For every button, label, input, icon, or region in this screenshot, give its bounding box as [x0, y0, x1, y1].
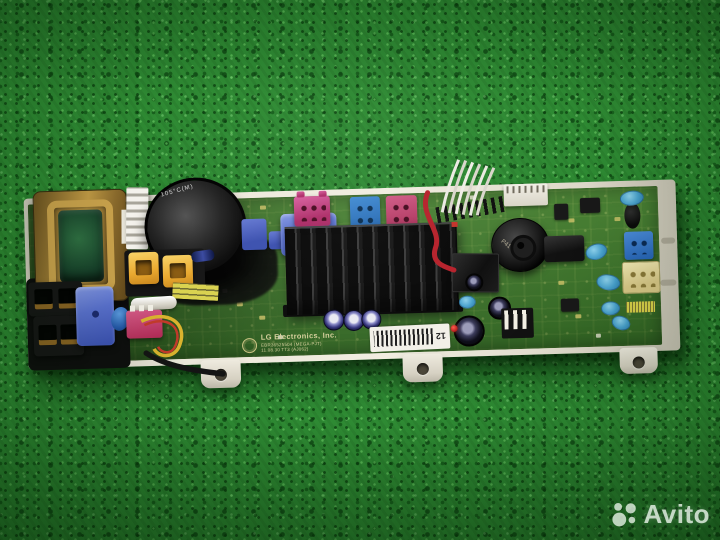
mounting-tab [402, 353, 443, 382]
relay-blue [75, 286, 115, 346]
connector-slot [58, 288, 77, 309]
film-capacitor-blue [241, 219, 267, 251]
avito-watermark: Avito [610, 499, 710, 530]
barcode-label-number: 12 [436, 331, 446, 341]
white-comb-connector [501, 308, 534, 339]
yellow-mini-label [626, 301, 655, 313]
header-pins [506, 185, 544, 193]
smd-ic [580, 198, 600, 214]
connector-pin-holes [390, 200, 414, 225]
smd-pad [259, 316, 265, 320]
smd-pad [596, 334, 601, 338]
smd-ic [554, 204, 568, 220]
mounting-tab [619, 347, 658, 374]
harness-connector-pink-1 [294, 196, 331, 227]
silkscreen-text: LG Electronics, Inc. EBR36525504 (MEGA-P… [242, 330, 383, 360]
connector-pin-holes [298, 201, 327, 222]
buzzer-hole [517, 241, 524, 248]
screw-hole [417, 363, 429, 375]
avito-logo-icon [610, 500, 640, 530]
connector-slot [135, 260, 151, 275]
lg-logo-stamp-icon [242, 338, 257, 353]
connector-slot [170, 263, 186, 278]
connector-slot [38, 325, 57, 346]
mounting-tab [200, 359, 241, 388]
barcode-stripes [374, 329, 434, 348]
white-barcode-label: 12 [369, 323, 450, 352]
relay-black [544, 235, 585, 262]
screw-hole [215, 369, 227, 381]
silkscreen-date-code: 11.08.30 TT3 (AJ062) [261, 345, 337, 352]
yellow-barcode-label [172, 282, 219, 301]
yellow-connector [128, 252, 159, 285]
pink-connector-bottom-left [126, 310, 163, 339]
capacitor-marking: 105°C(M) [160, 184, 194, 199]
red-smd-component [451, 222, 457, 227]
smd-pad [568, 218, 574, 222]
connector-cream-right [622, 261, 661, 294]
tray-groove [661, 237, 675, 243]
connector-teeth [504, 310, 531, 330]
white-pin-header [503, 183, 548, 206]
connector-pin-holes [628, 236, 650, 255]
pcb-assembly: 105°C(M) [24, 179, 681, 369]
heatsink [285, 222, 460, 315]
smd-pad [575, 314, 581, 318]
watermark-text: Avito [643, 499, 710, 530]
connector-blue-right [624, 231, 654, 260]
screw-hole [633, 356, 645, 368]
smd-pad [260, 206, 266, 210]
transformer-core [58, 209, 104, 282]
smd-pad [558, 281, 564, 285]
connector-slot [34, 289, 53, 310]
silkscreen-lines: LG Electronics, Inc. EBR36525504 (MEGA-P… [261, 331, 338, 352]
relay-dot [92, 310, 99, 317]
smd-pad [614, 217, 620, 221]
smd-pad [470, 195, 475, 199]
connector-pin-holes [627, 267, 656, 288]
smd-ic [561, 298, 579, 312]
connector-pin-holes [354, 201, 377, 225]
tray-groove [660, 279, 676, 285]
photo-canvas: 105°C(M) [0, 0, 720, 540]
